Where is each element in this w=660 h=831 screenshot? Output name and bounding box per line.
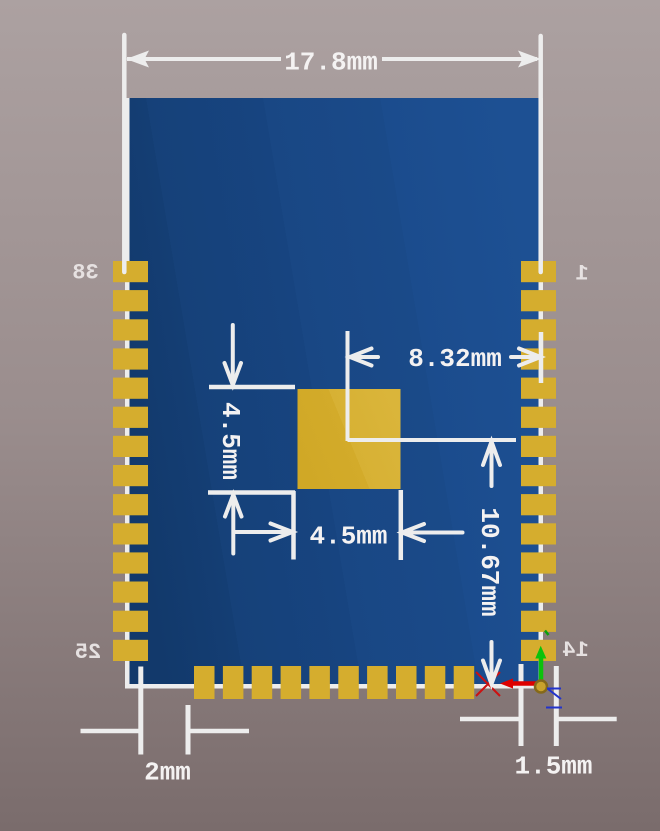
svg-text:4.5mm: 4.5mm <box>215 402 245 480</box>
svg-text:1.5mm: 1.5mm <box>514 752 592 782</box>
svg-text:8.32mm: 8.32mm <box>408 344 502 374</box>
svg-text:17.8mm: 17.8mm <box>284 48 378 78</box>
svg-text:2mm: 2mm <box>144 758 191 788</box>
svg-text:4.5mm: 4.5mm <box>309 522 387 552</box>
svg-text:14: 14 <box>562 638 588 663</box>
svg-text:25: 25 <box>75 640 101 665</box>
svg-text:10.67mm: 10.67mm <box>474 507 504 616</box>
svg-text:38: 38 <box>72 260 98 285</box>
svg-text:1: 1 <box>575 261 588 286</box>
